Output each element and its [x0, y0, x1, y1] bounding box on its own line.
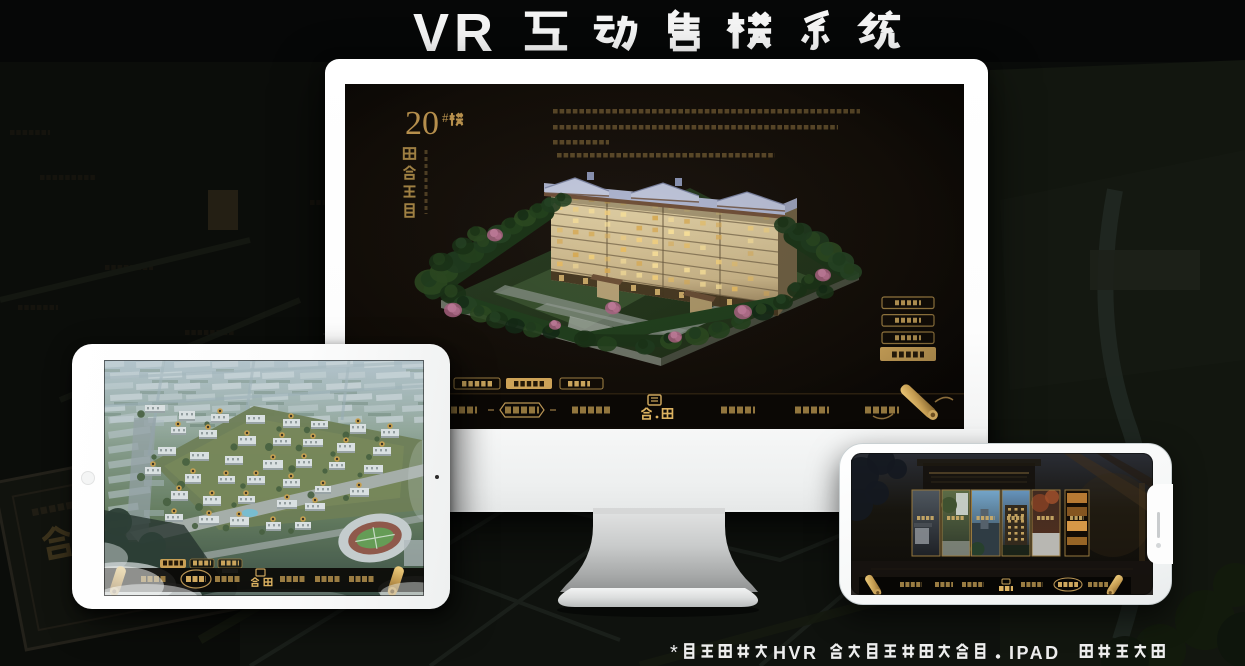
svg-text:VR: VR — [413, 3, 498, 62]
svg-text:IPAD: IPAD — [1009, 643, 1061, 663]
svg-text:*: * — [670, 642, 678, 664]
svg-text:HVR: HVR — [773, 643, 819, 663]
